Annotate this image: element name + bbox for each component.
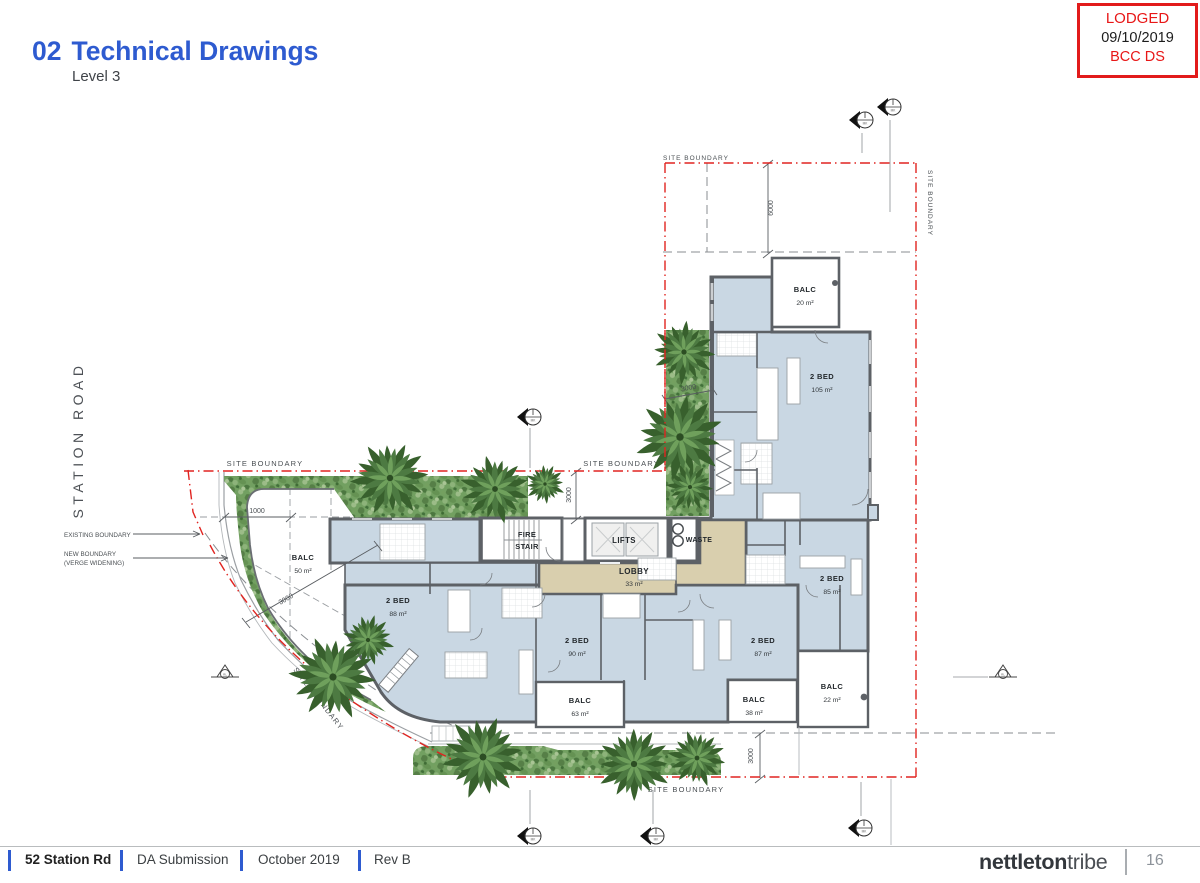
svg-text:SITE BOUNDARY: SITE BOUNDARY [227,459,304,468]
svg-text:87 m²: 87 m² [754,651,772,658]
svg-text:2 BED: 2 BED [820,574,844,583]
svg-text:63 m²: 63 m² [571,711,589,718]
svg-text:(VERGE WIDENING): (VERGE WIDENING) [64,560,124,567]
svg-text:2 BED: 2 BED [751,636,775,645]
svg-text:BALC: BALC [794,285,817,294]
svg-text:33 m²: 33 m² [625,581,643,588]
svg-text:2 BED: 2 BED [810,372,834,381]
svg-text:90 m²: 90 m² [568,651,586,658]
svg-text:BALC: BALC [743,695,766,704]
svg-text:BALC: BALC [821,682,844,691]
svg-text:2 BED: 2 BED [386,596,410,605]
svg-text:EXISTING BOUNDARY: EXISTING BOUNDARY [64,532,132,539]
svg-text:WASTE: WASTE [686,537,712,544]
svg-text:1000: 1000 [249,508,265,515]
svg-text:22 m²: 22 m² [823,697,841,704]
svg-text:BALC: BALC [292,553,315,562]
svg-text:SITE BOUNDARY: SITE BOUNDARY [663,155,729,162]
svg-text:88 m²: 88 m² [389,611,407,618]
svg-text:LOBBY: LOBBY [619,567,649,576]
svg-text:FIRE: FIRE [518,530,536,539]
svg-text:3000: 3000 [748,748,755,764]
svg-text:38 m²: 38 m² [745,710,763,717]
svg-text:NEW BOUNDARY: NEW BOUNDARY [64,551,117,558]
svg-text:STATION ROAD: STATION ROAD [70,362,86,519]
svg-text:85 m²: 85 m² [823,589,841,596]
svg-text:STAIR: STAIR [515,542,539,551]
svg-text:SITE BOUNDARY: SITE BOUNDARY [648,785,725,794]
svg-text:105 m²: 105 m² [811,387,833,394]
svg-text:BALC: BALC [569,696,592,705]
svg-text:50 m²: 50 m² [294,568,312,575]
svg-text:20 m²: 20 m² [796,300,814,307]
svg-text:3000: 3000 [278,593,295,607]
svg-text:LIFTS: LIFTS [612,536,636,545]
svg-text:SITE BOUNDARY: SITE BOUNDARY [926,170,933,236]
svg-text:2 BED: 2 BED [565,636,589,645]
svg-text:6000: 6000 [768,200,775,216]
svg-text:SITE BOUNDARY: SITE BOUNDARY [583,459,660,468]
svg-text:3000: 3000 [566,487,573,503]
